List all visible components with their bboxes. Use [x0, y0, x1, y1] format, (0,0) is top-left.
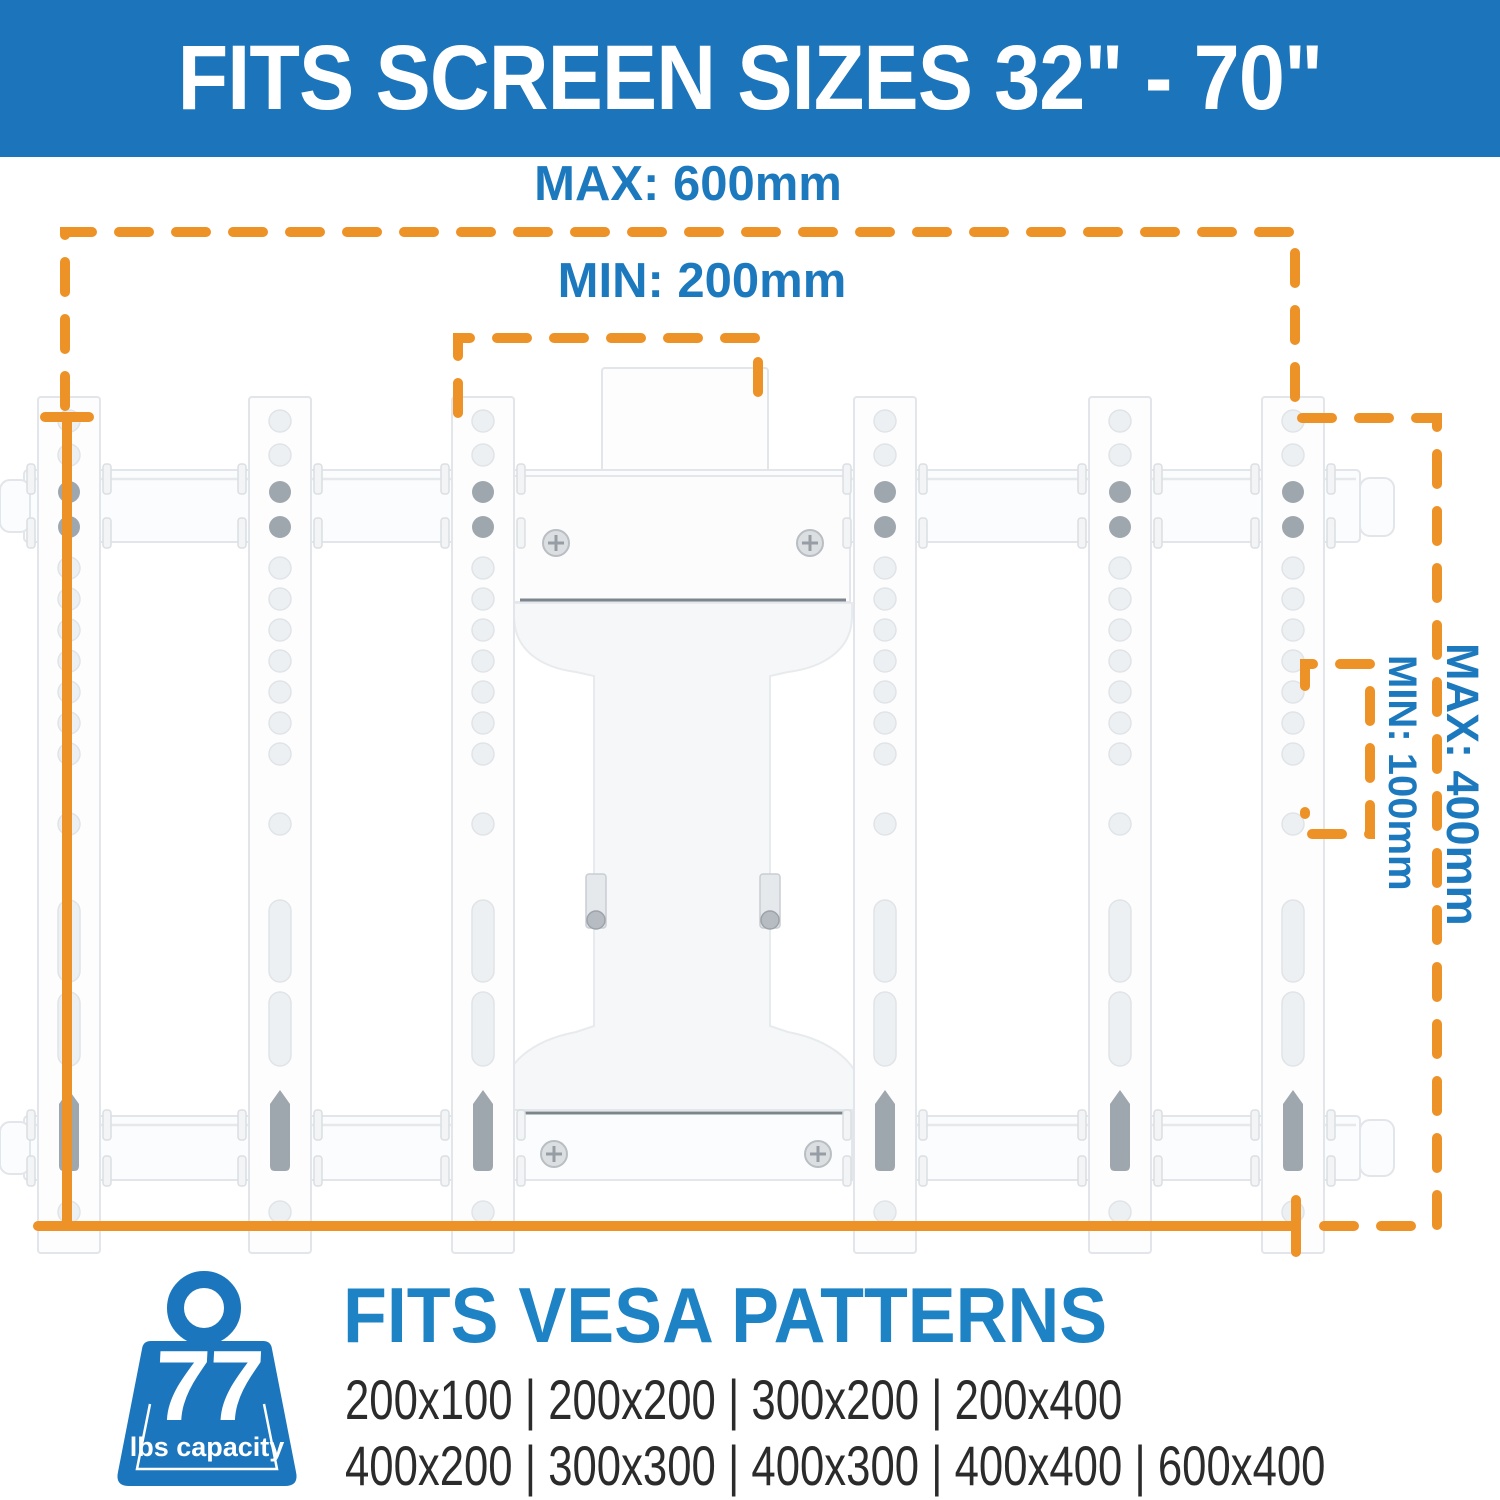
- max-width-label: MAX: 600mm: [534, 160, 842, 209]
- wall-plate: [496, 603, 868, 1112]
- vesa-row: 200x100 | 200x200 | 300x200 | 200x400: [345, 1372, 1122, 1428]
- screw: [541, 1141, 567, 1167]
- max-height-label: MAX: 400mm: [1440, 643, 1485, 926]
- mount-rail: [441, 397, 525, 1253]
- tv-mount-bracket: [0, 368, 1394, 1253]
- mount-rail: [1251, 397, 1335, 1253]
- min-height-label: MIN: 100mm: [1382, 655, 1422, 891]
- screw: [805, 1141, 831, 1167]
- vesa-patterns-heading: FITS VESA PATTERNS: [343, 1276, 1107, 1354]
- vesa-row: 400x200 | 300x300 | 400x300 | 400x400 | …: [345, 1438, 1325, 1494]
- min-width-label: MIN: 200mm: [558, 257, 847, 306]
- mount-rail: [238, 397, 322, 1253]
- mount-rail: [843, 397, 927, 1253]
- infographic-page: FITS SCREEN SIZES 32" - 70" MAX: 600mm M…: [0, 0, 1500, 1500]
- screw: [543, 530, 569, 556]
- capacity-unit: lbs capacity: [130, 1434, 285, 1461]
- screw: [797, 530, 823, 556]
- mount-rail: [1078, 397, 1162, 1253]
- capacity-value: 77: [152, 1336, 264, 1436]
